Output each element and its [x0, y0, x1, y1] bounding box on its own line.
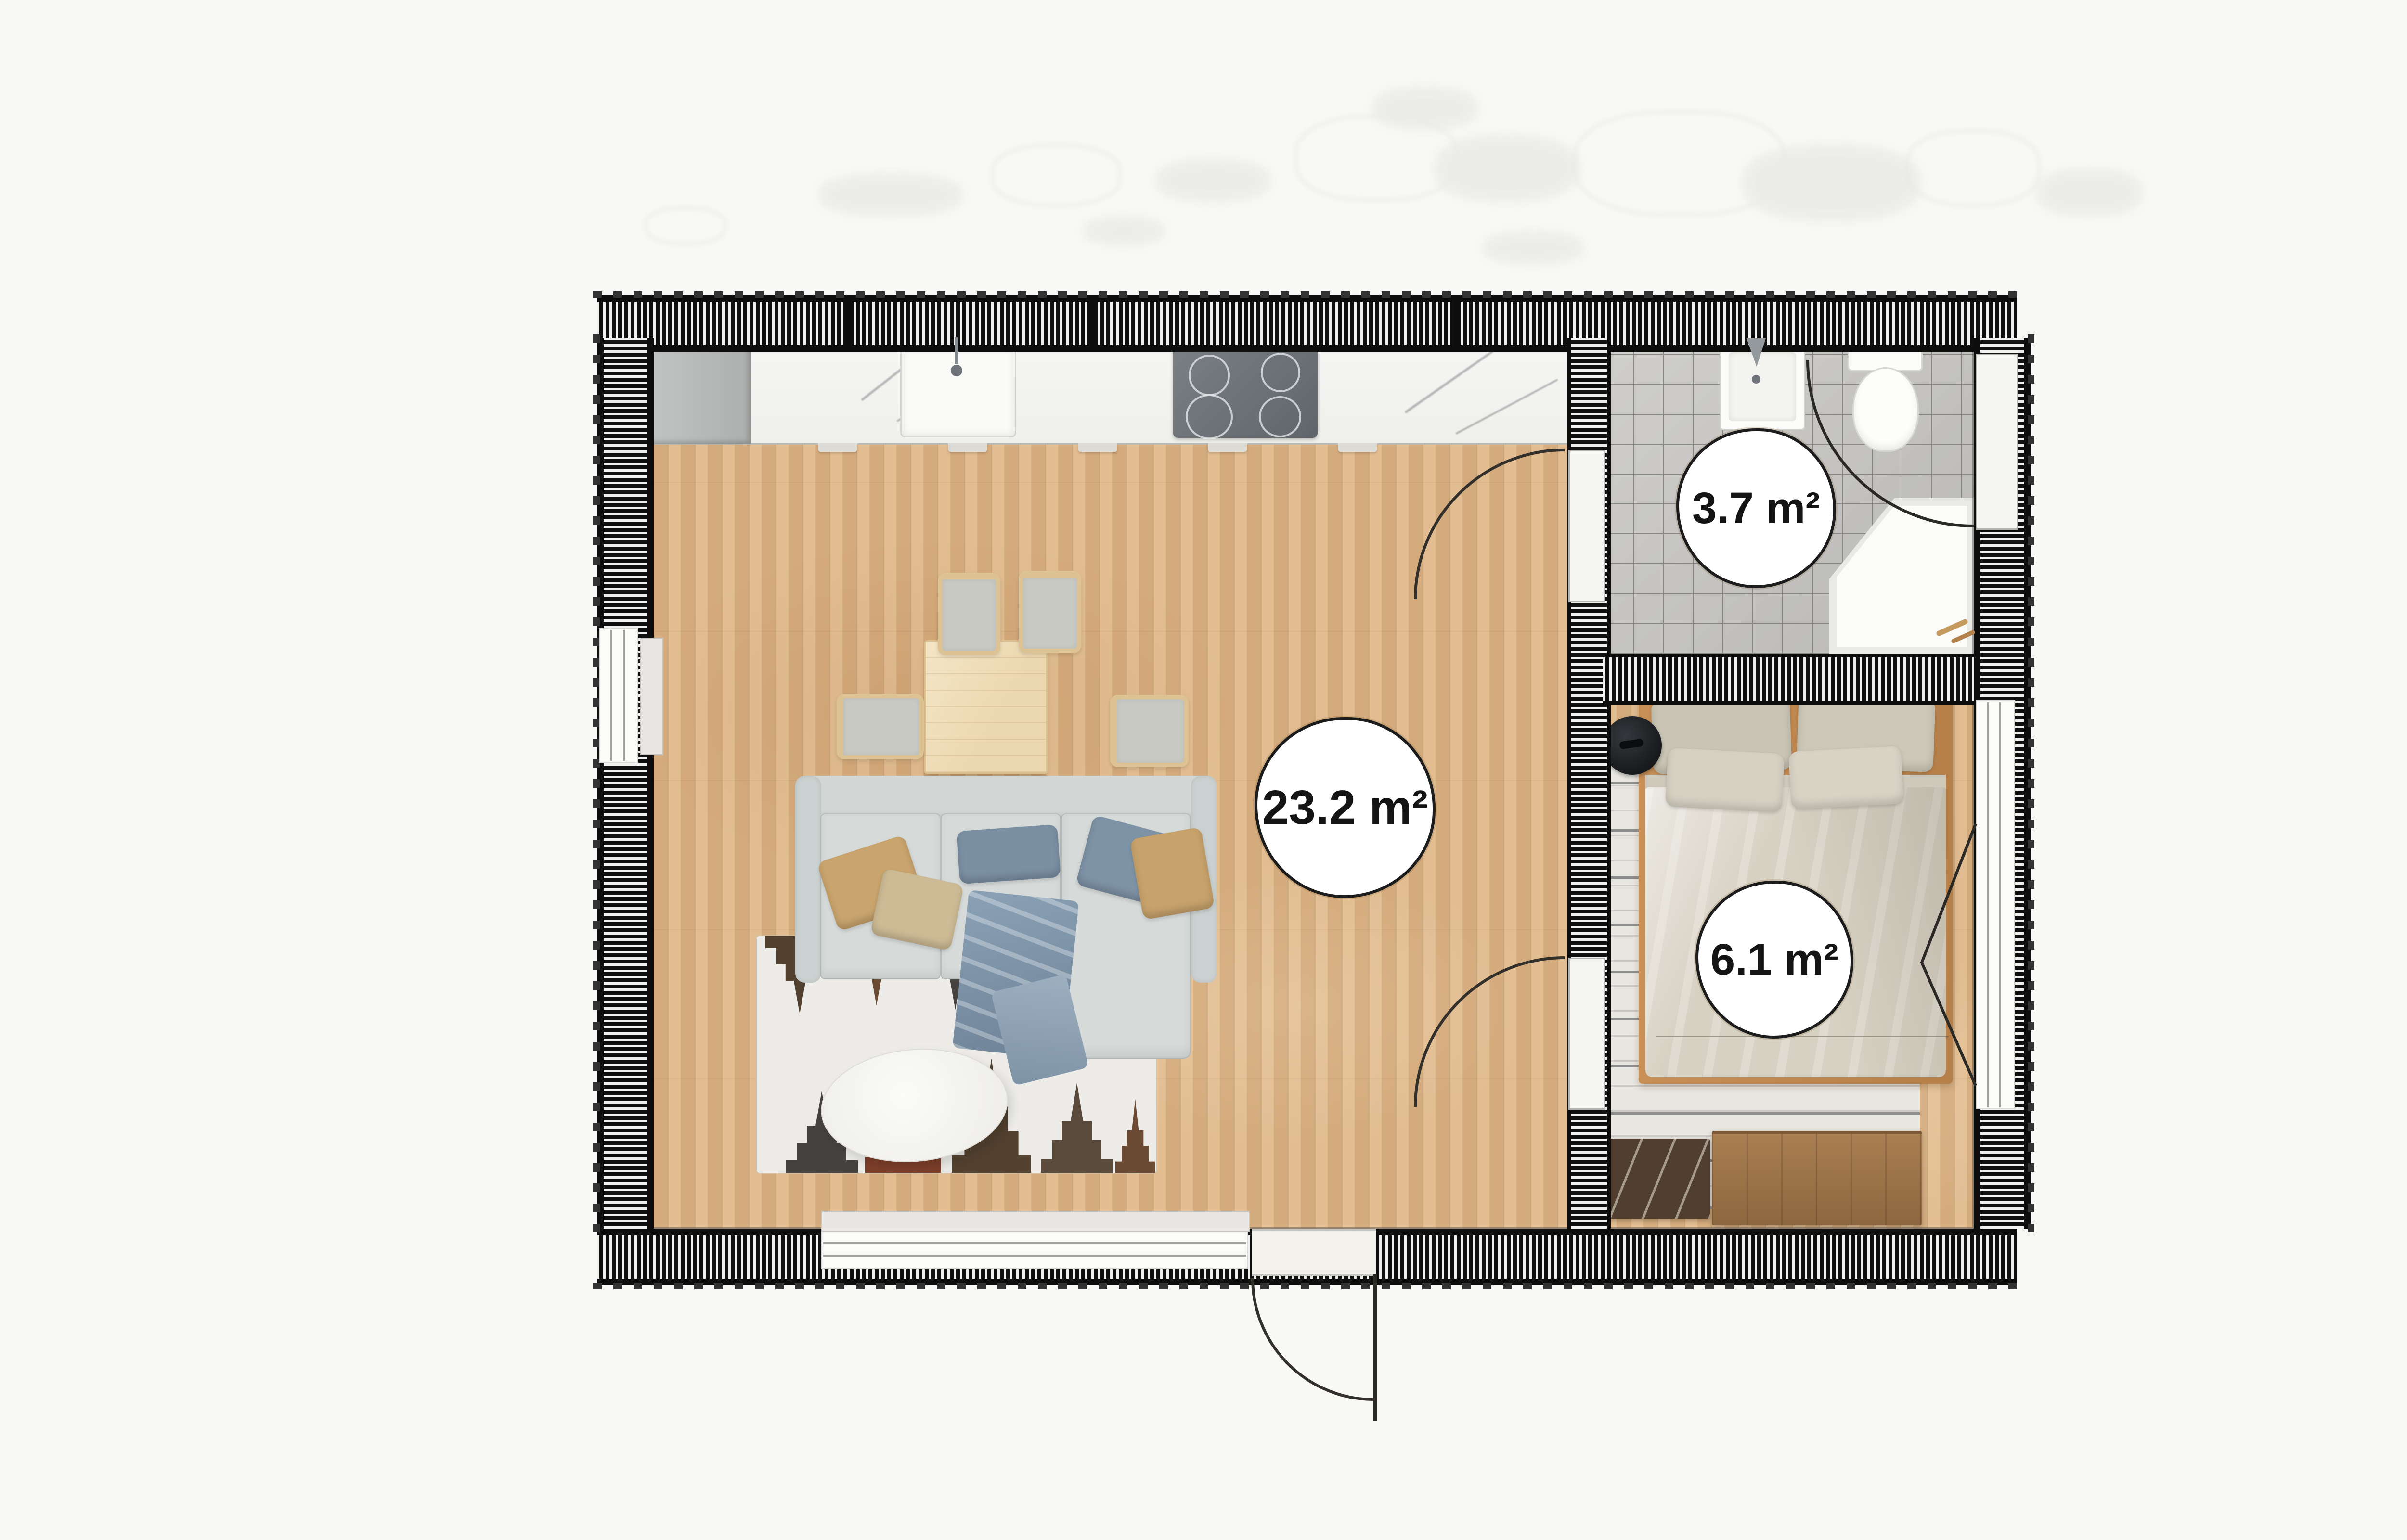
bathroom-exterior-door-leaf [1976, 354, 2018, 530]
sofa-armrest [795, 776, 821, 983]
cabinet-handle [1338, 443, 1377, 452]
floor-plan-page: 23.2 m² 3.7 m² 6.1 m² [0, 0, 2407, 1540]
entrance-door-arc [1253, 1278, 1374, 1399]
room-label-living: 23.2 m² [1255, 717, 1436, 898]
bedside-stool [1603, 716, 1662, 775]
sketch-smudge [992, 144, 1121, 206]
wall-joint [1454, 302, 1460, 345]
sketch-smudge [1372, 87, 1478, 130]
room-label-bathroom: 3.7 m² [1676, 428, 1836, 588]
dining-chair [837, 694, 924, 759]
bed-pillow-small [1788, 746, 1904, 809]
bed-pillow-small [1665, 748, 1785, 812]
sketch-smudge [818, 173, 963, 217]
cabinet-handle [818, 443, 857, 452]
dining-chair [1110, 695, 1189, 767]
bathroom-sink [1720, 338, 1805, 430]
dining-chair [938, 573, 1000, 655]
window-mullion [623, 630, 625, 761]
wall-joint [845, 302, 851, 345]
wall-top [597, 295, 2017, 352]
sketch-smudge [1435, 135, 1579, 202]
room-label-bedroom-text: 6.1 m² [1710, 935, 1838, 985]
sketch-smudge [645, 207, 726, 244]
duvet-seam [1656, 1036, 1949, 1037]
bedroom-interior-door-leaf [1568, 958, 1605, 1110]
burner-icon [1189, 355, 1230, 396]
wall-joint [1090, 302, 1096, 345]
sketch-smudge [1906, 130, 2040, 206]
sofa-pillow-tan [1129, 827, 1215, 920]
window-mullion [610, 630, 612, 761]
sketch-smudge [1083, 217, 1165, 245]
sketch-smudge [1155, 159, 1271, 202]
entrance-threshold [1252, 1229, 1376, 1276]
cabinet-handle [948, 443, 987, 452]
bedroom-dresser [1712, 1131, 1922, 1225]
window-mullion [823, 1242, 1246, 1244]
window-mullion [823, 1255, 1246, 1257]
window-left [599, 628, 638, 763]
dining-chair [1019, 571, 1081, 653]
interior-wall-bath-bedroom [1603, 654, 1974, 705]
room-label-bedroom: 6.1 m² [1695, 881, 1853, 1039]
sink-basin [1729, 352, 1796, 421]
window-bench [821, 1211, 1250, 1232]
stool-handle [1619, 739, 1644, 750]
sofa-pillow-denim [956, 824, 1061, 884]
kitchen-cabinet-block [640, 338, 751, 444]
kitchen-counter [640, 338, 1567, 445]
room-label-living-text: 23.2 m² [1262, 780, 1428, 835]
floor-plan: 23.2 m² 3.7 m² 6.1 m² [597, 295, 2017, 1272]
wall-left [597, 338, 654, 1229]
bedroom-window-door [1976, 700, 2015, 1109]
burner-icon [1261, 353, 1300, 392]
sketch-smudge [2036, 168, 2142, 217]
cooktop [1173, 344, 1318, 438]
window-bottom [821, 1232, 1248, 1269]
sketch-smudge [1743, 144, 1921, 221]
cabinet-handle [1078, 443, 1117, 452]
toilet [1852, 367, 1919, 452]
sofa-back [798, 776, 1216, 817]
room-label-bathroom-text: 3.7 m² [1692, 483, 1820, 534]
marble-vein [1455, 379, 1558, 435]
burner-icon [1186, 394, 1233, 439]
window-mullion [1999, 702, 2001, 1107]
kitchen-sink [900, 346, 1016, 437]
bathroom-interior-door-leaf [1568, 450, 1605, 602]
window-sill [640, 638, 663, 755]
window-mullion [1987, 702, 1989, 1107]
dining-table [924, 640, 1048, 774]
burner-icon [1259, 396, 1301, 437]
sketch-smudge [1483, 231, 1584, 265]
cabinet-handle [1208, 443, 1247, 452]
